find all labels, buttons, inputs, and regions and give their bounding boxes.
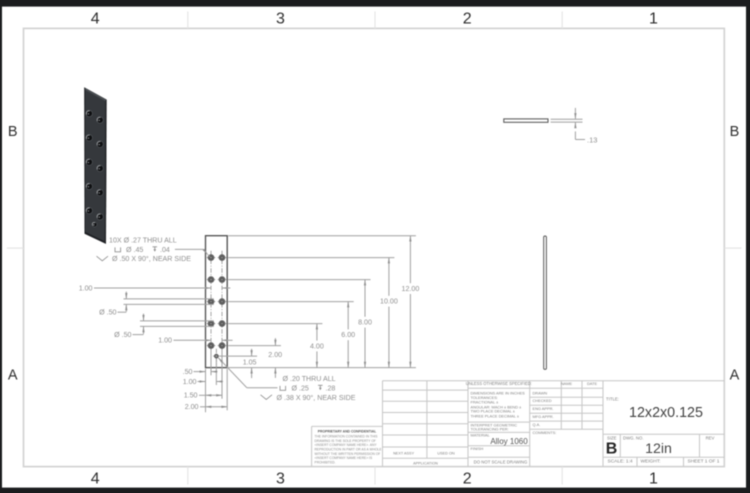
- svg-text:6.00: 6.00: [341, 331, 355, 339]
- svg-text:Alloy 1060: Alloy 1060: [490, 437, 528, 446]
- svg-text:Q.A.: Q.A.: [533, 422, 541, 427]
- svg-text:1.00: 1.00: [183, 378, 197, 386]
- svg-text:PROPRIETARY AND CONFIDENTIAL: PROPRIETARY AND CONFIDENTIAL: [318, 429, 376, 433]
- svg-text:12in: 12in: [645, 441, 672, 457]
- svg-text:CHECKED: CHECKED: [533, 398, 552, 403]
- svg-text:1: 1: [649, 470, 658, 487]
- svg-text:DWG. NO.: DWG. NO.: [623, 435, 644, 440]
- svg-text:4: 4: [91, 10, 100, 27]
- svg-text:12.00: 12.00: [402, 285, 420, 293]
- svg-text:UNLESS OTHERWISE SPECIFIED:: UNLESS OTHERWISE SPECIFIED:: [466, 381, 532, 386]
- svg-text:DRAWN: DRAWN: [533, 391, 548, 396]
- svg-text:1.00: 1.00: [158, 337, 172, 345]
- svg-text:.13: .13: [587, 136, 597, 145]
- svg-text:.50: .50: [183, 368, 193, 376]
- svg-text:REV: REV: [706, 435, 715, 440]
- svg-text:3: 3: [276, 10, 285, 27]
- svg-text:B: B: [606, 441, 618, 458]
- svg-text:.28: .28: [326, 384, 336, 392]
- svg-text:2.00: 2.00: [268, 351, 282, 359]
- svg-text:B: B: [8, 124, 18, 140]
- svg-text:4.00: 4.00: [310, 342, 324, 350]
- svg-text:COMMENTS:: COMMENTS:: [533, 430, 557, 435]
- svg-text:PROHIBITED.: PROHIBITED.: [315, 460, 336, 464]
- svg-text:1.00: 1.00: [79, 284, 93, 292]
- svg-text:1: 1: [649, 10, 658, 27]
- svg-text:Ø .38 X 90°, NEAR SIDE: Ø .38 X 90°, NEAR SIDE: [277, 394, 356, 402]
- svg-text:Ø .50 X 90°, NEAR SIDE: Ø .50 X 90°, NEAR SIDE: [112, 255, 191, 263]
- svg-text:1.50: 1.50: [184, 392, 198, 400]
- svg-text:Ø .20 THRU ALL: Ø .20 THRU ALL: [283, 375, 336, 383]
- svg-text:A: A: [730, 367, 740, 383]
- svg-text:Ø .50: Ø .50: [99, 309, 116, 317]
- svg-text:2: 2: [463, 10, 472, 27]
- svg-text:2: 2: [463, 470, 472, 487]
- svg-text:10X Ø .27 THRU ALL: 10X Ø .27 THRU ALL: [109, 236, 177, 244]
- svg-text:NAME: NAME: [561, 381, 573, 386]
- svg-text:10.00: 10.00: [380, 298, 398, 306]
- svg-text:8.00: 8.00: [358, 319, 372, 327]
- svg-text:TOLERANCING PER:: TOLERANCING PER:: [471, 426, 509, 431]
- svg-text:SIZE: SIZE: [607, 435, 617, 440]
- svg-text:DATE: DATE: [587, 381, 597, 386]
- svg-text:SHEET 1 OF 1: SHEET 1 OF 1: [688, 459, 720, 465]
- svg-text:MFG APPR.: MFG APPR.: [533, 414, 554, 419]
- svg-text:ENG APPR.: ENG APPR.: [533, 406, 554, 411]
- svg-text:12x2x0.125: 12x2x0.125: [629, 405, 703, 421]
- svg-text:NEXT ASSY: NEXT ASSY: [393, 452, 415, 456]
- svg-text:2.00: 2.00: [185, 403, 199, 411]
- svg-text:WEIGHT:: WEIGHT:: [641, 459, 661, 465]
- svg-text:MATERIAL: MATERIAL: [471, 432, 491, 437]
- svg-text:Ø .25: Ø .25: [292, 384, 309, 392]
- svg-text:DO NOT SCALE DRAWING: DO NOT SCALE DRAWING: [474, 459, 528, 464]
- svg-text:A: A: [8, 367, 18, 383]
- svg-text:1.05: 1.05: [243, 359, 257, 367]
- svg-text:.04: .04: [160, 246, 170, 254]
- svg-text:TITLE:: TITLE:: [606, 396, 619, 401]
- svg-text:B: B: [730, 124, 740, 140]
- svg-text:USED ON: USED ON: [437, 452, 455, 456]
- svg-text:Ø .50: Ø .50: [114, 331, 131, 339]
- svg-text:3: 3: [276, 470, 285, 487]
- svg-text:APPLICATION: APPLICATION: [413, 461, 438, 465]
- svg-text:FINISH: FINISH: [471, 446, 484, 451]
- svg-text:SCALE: 1:4: SCALE: 1:4: [608, 459, 633, 465]
- svg-text:Ø .45: Ø .45: [126, 246, 143, 254]
- svg-text:4: 4: [91, 470, 100, 487]
- svg-text:THREE PLACE DECIMAL ±: THREE PLACE DECIMAL ±: [471, 414, 520, 419]
